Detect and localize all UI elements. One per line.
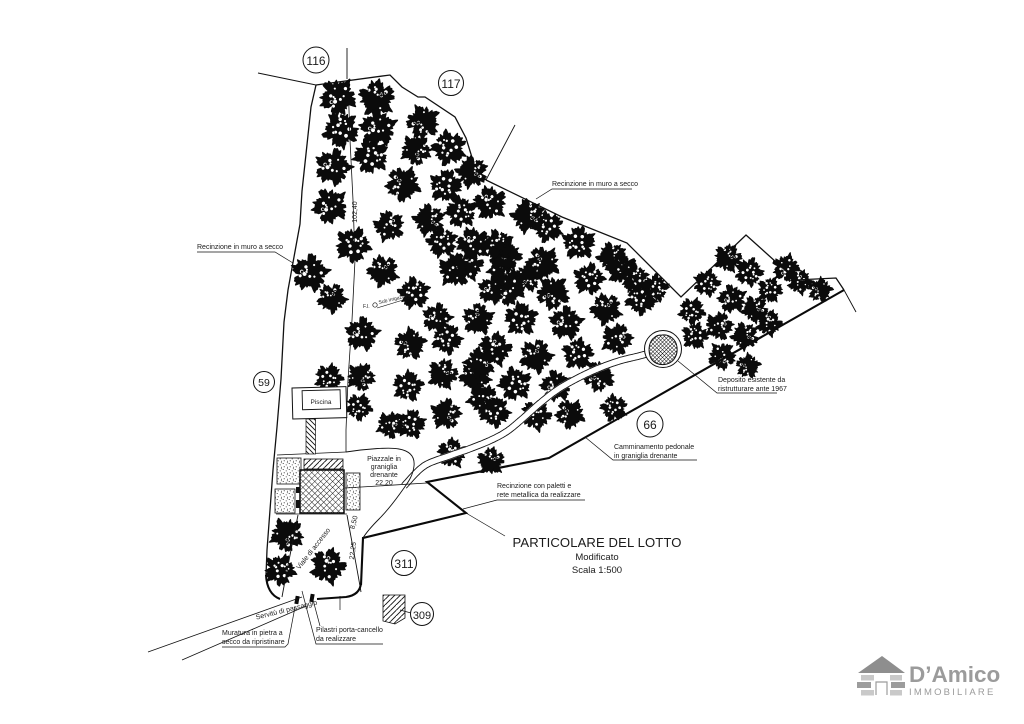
svg-text:22,25: 22,25 — [349, 542, 358, 560]
svg-text:in graniglia drenante: in graniglia drenante — [614, 453, 678, 460]
svg-text:graniglia: graniglia — [371, 464, 398, 471]
svg-text:116: 116 — [306, 54, 325, 68]
svg-text:Muratura in pietra a: Muratura in pietra a — [222, 630, 283, 637]
svg-text:PARTICOLARE DEL LOTTO: PARTICOLARE DEL LOTTO — [513, 535, 682, 550]
svg-text:drenante: drenante — [370, 472, 398, 479]
svg-text:117: 117 — [441, 77, 460, 91]
svg-text:Deposito esistente da: Deposito esistente da — [718, 377, 785, 384]
svg-text:8,50: 8,50 — [349, 515, 359, 530]
svg-text:Modificato: Modificato — [575, 552, 618, 563]
svg-text:secco da ripristinare: secco da ripristinare — [222, 639, 285, 646]
svg-text:Piscina: Piscina — [311, 399, 332, 406]
svg-text:da realizzare: da realizzare — [316, 636, 356, 643]
svg-text:D’Amico: D’Amico — [909, 662, 1000, 687]
svg-text:F.I.: F.I. — [363, 304, 370, 310]
svg-text:66: 66 — [643, 418, 657, 432]
svg-text:ristrutturare ante 1967: ristrutturare ante 1967 — [718, 386, 787, 393]
svg-text:Recinzione in muro a secco: Recinzione in muro a secco — [197, 244, 283, 251]
svg-text:Camminamento pedonale: Camminamento pedonale — [614, 444, 694, 451]
svg-text:102,40: 102,40 — [352, 201, 359, 223]
svg-text:Pilastri porta-cancello: Pilastri porta-cancello — [316, 627, 383, 634]
svg-text:309: 309 — [413, 610, 431, 622]
svg-text:22,20: 22,20 — [375, 480, 393, 487]
svg-text:rete metallica da realizzare: rete metallica da realizzare — [497, 492, 581, 499]
svg-text:311: 311 — [394, 557, 413, 571]
svg-text:Piazzale in: Piazzale in — [367, 456, 401, 463]
svg-text:Scala 1:500: Scala 1:500 — [572, 565, 622, 576]
svg-text:IMMOBILIARE: IMMOBILIARE — [909, 687, 996, 698]
svg-text:Recinzione con paletti e: Recinzione con paletti e — [497, 483, 571, 490]
svg-text:59: 59 — [258, 377, 270, 389]
svg-text:Recinzione in muro a secco: Recinzione in muro a secco — [552, 181, 638, 188]
